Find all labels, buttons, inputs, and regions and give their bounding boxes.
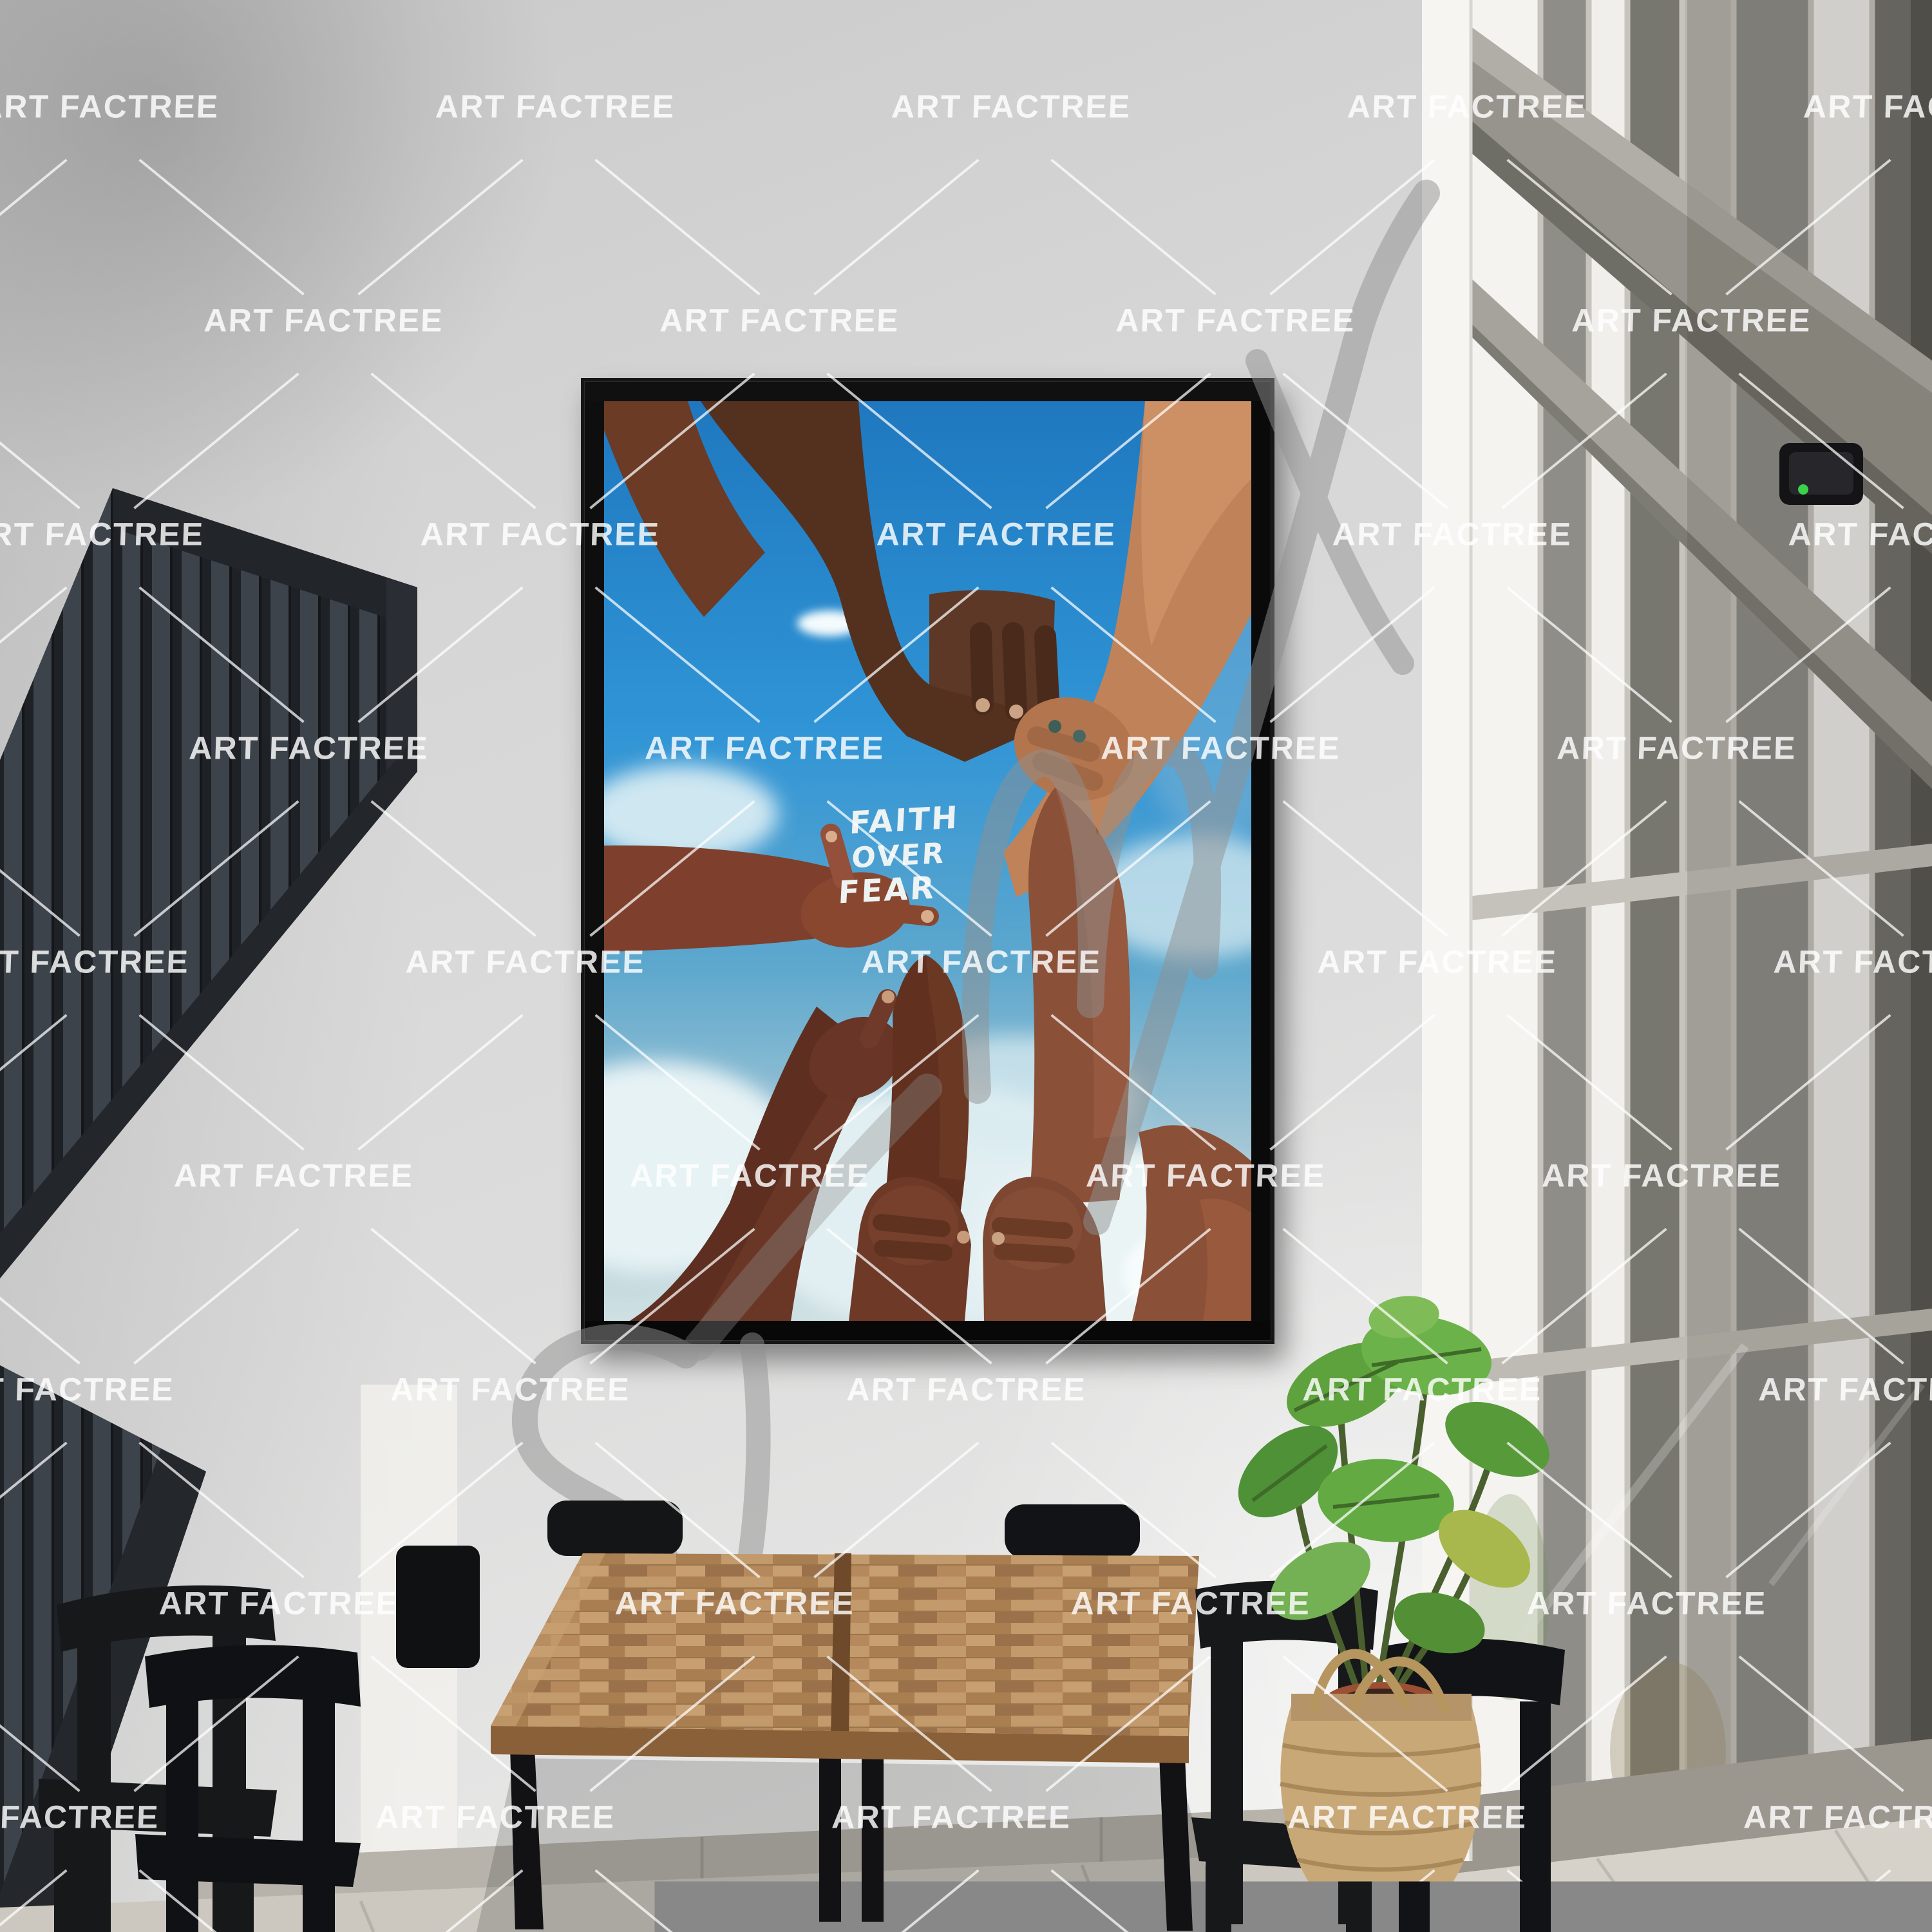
- watermark-line: [140, 587, 304, 722]
- watermark-line: [358, 1870, 522, 1932]
- watermark-line: [0, 374, 80, 508]
- watermark-line: [590, 1229, 754, 1363]
- watermark-line: [828, 801, 992, 936]
- watermark-line: [1726, 587, 1890, 722]
- watermark-text: ART FACTREE: [1332, 516, 1573, 553]
- watermark-line: [1046, 374, 1210, 508]
- watermark-line: [1502, 1229, 1666, 1363]
- watermark-line: [358, 587, 522, 722]
- watermark-line: [596, 160, 760, 294]
- watermark-line: [1270, 587, 1434, 722]
- watermark-line: [0, 160, 66, 294]
- watermark-line: [1270, 1015, 1434, 1150]
- watermark-text: ART FACTREE: [158, 1586, 399, 1622]
- watermark-line: [814, 1870, 978, 1932]
- watermark-line: [1046, 801, 1210, 936]
- watermark-line: [596, 1443, 760, 1577]
- watermark-text: ART FACTREE: [1287, 1799, 1528, 1835]
- watermark-line: [1046, 1229, 1210, 1363]
- watermark-text: ART FACTREE: [435, 89, 676, 125]
- watermark-line: [140, 160, 304, 294]
- watermark-line: [140, 1870, 304, 1932]
- watermark-text: ART FACTREE: [876, 516, 1117, 553]
- watermark-line: [590, 801, 754, 936]
- watermark-line: [596, 1015, 760, 1150]
- watermark-text: ART FACTREE: [204, 303, 444, 339]
- watermark-text: ART FACTREE: [1317, 944, 1558, 980]
- watermark-text: ART FACTREE: [0, 516, 205, 553]
- watermark-line: [1726, 1870, 1890, 1932]
- watermark-text: ART FACTREE: [1541, 1158, 1782, 1194]
- watermark-line: [1502, 374, 1666, 508]
- watermark-text: ART FACTREE: [1803, 89, 1932, 125]
- watermark-text: ART FACTREE: [1773, 944, 1932, 980]
- watermark-line: [134, 374, 298, 508]
- watermark-line: [1283, 801, 1448, 936]
- watermark-line: [0, 587, 66, 722]
- watermark-line: [0, 801, 80, 936]
- watermark-line: [1270, 1870, 1434, 1932]
- watermark-line: [814, 587, 978, 722]
- watermark-text: ART FACTREE: [659, 303, 900, 339]
- watermark-line: [814, 1015, 978, 1150]
- watermark-line: [1283, 374, 1448, 508]
- watermark-line: [134, 801, 298, 936]
- watermark-line: [1508, 1443, 1672, 1577]
- watermark-layer: ART FACTREEART FACTREEART FACTREEART FAC…: [0, 0, 1932, 1932]
- watermark-line: [596, 1870, 760, 1932]
- watermark-text: ART FACTREE: [1758, 1372, 1932, 1408]
- watermark-line: [372, 1656, 536, 1791]
- watermark-line: [1508, 587, 1672, 722]
- watermark-line: [1052, 1015, 1216, 1150]
- watermark-text: ART FACTREE: [390, 1372, 631, 1408]
- watermark-line: [0, 1229, 80, 1363]
- watermark-text: ART FACTREE: [1070, 1586, 1311, 1622]
- watermark-text: ART FACTREE: [629, 1158, 870, 1194]
- watermark-text: ART FACTREE: [420, 516, 661, 553]
- watermark-line: [372, 374, 536, 508]
- watermark-line: [134, 1229, 298, 1363]
- watermark-text: ART FACTREE: [1526, 1586, 1767, 1622]
- watermark-line: [1502, 1656, 1666, 1791]
- watermark-text: ART FACTREE: [846, 1372, 1087, 1408]
- watermark-text: ART FACTREE: [0, 1799, 160, 1835]
- watermark-line: [1046, 1656, 1210, 1791]
- watermark-text: ART FACTREE: [1571, 303, 1812, 339]
- watermark-text: ART FACTREE: [0, 89, 220, 125]
- watermark-line: [1052, 1443, 1216, 1577]
- watermark-line: [1508, 1870, 1672, 1932]
- watermark-text: ART FACTREE: [189, 730, 430, 766]
- watermark-text: ART FACTREE: [1347, 89, 1587, 125]
- watermark-line: [140, 1443, 304, 1577]
- watermark-text: ART FACTREE: [0, 1372, 175, 1408]
- watermark-line: [1052, 587, 1216, 722]
- watermark-line: [1508, 160, 1672, 294]
- watermark-line: [814, 1443, 978, 1577]
- watermark-line: [0, 1870, 66, 1932]
- watermark-line: [358, 1443, 522, 1577]
- watermark-line: [0, 1443, 66, 1577]
- watermark-line: [1052, 160, 1216, 294]
- watermark-line: [1739, 801, 1904, 936]
- watermark-line: [0, 1656, 80, 1791]
- watermark-line: [372, 1229, 536, 1363]
- watermark-line: [134, 1656, 298, 1791]
- watermark-line: [596, 587, 760, 722]
- watermark-text: ART FACTREE: [645, 730, 885, 766]
- mockup-photo: Faith Over Fear: [0, 0, 1932, 1932]
- watermark-line: [828, 1229, 992, 1363]
- watermark-line: [1726, 160, 1890, 294]
- watermark-text: ART FACTREE: [1302, 1372, 1543, 1408]
- watermark-text: ART FACTREE: [1557, 730, 1797, 766]
- watermark-line: [1283, 1656, 1448, 1791]
- watermark-text: ART FACTREE: [891, 89, 1132, 125]
- watermark-line: [1508, 1015, 1672, 1150]
- watermark-line: [1739, 374, 1904, 508]
- watermark-line: [1739, 1656, 1904, 1791]
- watermark-line: [140, 1015, 304, 1150]
- watermark-line: [828, 374, 992, 508]
- watermark-line: [1052, 1870, 1216, 1932]
- watermark-text: ART FACTREE: [173, 1158, 414, 1194]
- watermark-line: [358, 160, 522, 294]
- watermark-line: [358, 1015, 522, 1150]
- watermark-text: ART FACTREE: [1101, 730, 1341, 766]
- watermark-line: [590, 1656, 754, 1791]
- watermark-text: ART FACTREE: [861, 944, 1102, 980]
- watermark-text: ART FACTREE: [614, 1586, 855, 1622]
- watermark-line: [1739, 1229, 1904, 1363]
- watermark-text: ART FACTREE: [1115, 303, 1356, 339]
- watermark-line: [1270, 1443, 1434, 1577]
- watermark-text: ART FACTREE: [375, 1799, 616, 1835]
- watermark-line: [1502, 801, 1666, 936]
- watermark-text: ART FACTREE: [1743, 1799, 1932, 1835]
- watermark-text: ART FACTREE: [405, 944, 646, 980]
- watermark-line: [1726, 1015, 1890, 1150]
- watermark-line: [372, 801, 536, 936]
- watermark-text: ART FACTREE: [831, 1799, 1072, 1835]
- watermark-line: [1283, 1229, 1448, 1363]
- watermark-line: [1726, 1443, 1890, 1577]
- watermark-text: ART FACTREE: [1085, 1158, 1326, 1194]
- watermark-text: ART FACTREE: [1788, 516, 1932, 553]
- watermark-line: [590, 374, 754, 508]
- watermark-text: ART FACTREE: [0, 944, 190, 980]
- watermark-line: [814, 160, 978, 294]
- watermark-line: [1270, 160, 1434, 294]
- watermark-line: [0, 1015, 66, 1150]
- watermark-line: [828, 1656, 992, 1791]
